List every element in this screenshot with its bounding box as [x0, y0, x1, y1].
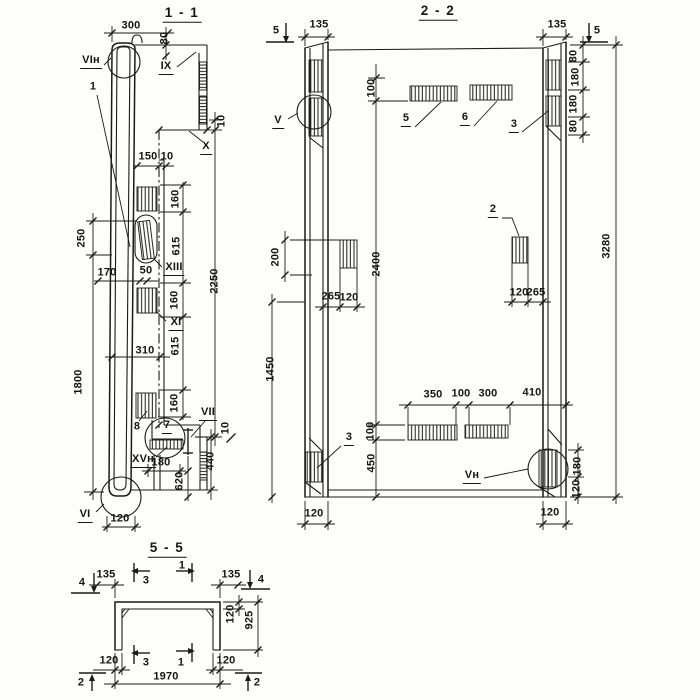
- item-3-top: 3: [509, 119, 519, 133]
- dim-250: 250: [77, 229, 88, 248]
- dim-100-top: 100: [367, 79, 378, 98]
- dim-120-under-left: 120: [305, 509, 324, 520]
- item-5: 5: [401, 113, 411, 127]
- dim-120-mid-left: 120: [340, 293, 359, 304]
- mark-x: X: [200, 141, 212, 155]
- dim-2400: 2400: [372, 251, 383, 276]
- dim-180-b: 180: [569, 95, 580, 114]
- dim-80-b: 80: [569, 120, 580, 133]
- dim-300-row: 300: [479, 389, 498, 400]
- item-1: 1: [90, 82, 96, 93]
- dim-450: 450: [367, 454, 378, 473]
- section-5-5-title: 5 - 5: [148, 541, 187, 558]
- dim-120-leg-right: 120: [217, 656, 236, 667]
- dim-1970: 1970: [153, 672, 178, 683]
- dim-350: 350: [424, 390, 443, 401]
- dim-120-leg-left: 120: [100, 656, 119, 667]
- cut-1-top: 1: [179, 561, 185, 572]
- item-6: 6: [460, 112, 470, 126]
- dim-80-a: 80: [569, 50, 580, 63]
- cut-5-right: 5: [594, 26, 600, 37]
- mark-ix: IX: [159, 61, 174, 75]
- dim-50: 50: [140, 266, 153, 277]
- dim-180-a: 180: [571, 68, 582, 87]
- mark-xiii: XIII: [163, 262, 184, 276]
- cut-2-right: 2: [254, 678, 260, 689]
- dim-120-bottom-chain: 120: [572, 480, 583, 499]
- dim-160-c: 160: [170, 394, 181, 413]
- dim-620: 620: [175, 472, 186, 491]
- dim-120-bottom: 120: [111, 514, 130, 525]
- dim-2250: 2250: [210, 268, 221, 293]
- dim-925: 925: [245, 611, 256, 630]
- item-3-bottom: 3: [344, 432, 354, 446]
- dim-80: 80: [160, 32, 171, 45]
- mark-xi: XI: [169, 317, 184, 331]
- dim-135-left: 135: [310, 20, 329, 31]
- mark-vi-n: VIн: [80, 55, 102, 69]
- dim-150: 150: [139, 152, 158, 163]
- section-2-2-title: 2 - 2: [419, 4, 458, 21]
- dim-180: 180: [152, 458, 171, 469]
- mark-v: V: [272, 115, 284, 129]
- drawing-canvas: [0, 0, 700, 700]
- dim-1800: 1800: [74, 369, 85, 394]
- dim-615-a: 615: [172, 237, 183, 256]
- dim-300: 300: [122, 21, 141, 32]
- cut-5-left: 5: [273, 26, 279, 37]
- dim-135-right: 135: [548, 20, 567, 31]
- dim-100-bottom: 100: [366, 422, 377, 441]
- dim-100-row: 100: [452, 389, 471, 400]
- cut-4-left: 4: [79, 578, 85, 589]
- item-8: 8: [134, 422, 140, 433]
- dim-200: 200: [271, 248, 282, 267]
- dim-160-a: 160: [171, 190, 182, 209]
- cut-3-top: 3: [143, 576, 149, 587]
- dim-135-right-55: 135: [222, 570, 241, 581]
- dim-120-under-right: 120: [541, 508, 560, 519]
- dim-310: 310: [136, 346, 155, 357]
- dim-615-b: 615: [171, 337, 182, 356]
- section-1-1-title: 1 - 1: [163, 6, 202, 23]
- cut-2-left: 2: [78, 678, 84, 689]
- dim-10-top: 10: [217, 115, 228, 128]
- cut-3-bottom: 3: [143, 658, 149, 669]
- mark-vii: VII: [199, 407, 217, 421]
- dim-135-left-55: 135: [97, 570, 116, 581]
- dim-10-bottom: 10: [221, 422, 232, 435]
- dim-3280: 3280: [602, 233, 613, 258]
- cut-4-right: 4: [258, 575, 264, 586]
- dim-180-bottom: 180: [573, 457, 584, 476]
- dim-1450: 1450: [266, 356, 277, 381]
- dim-160-b: 160: [170, 291, 181, 310]
- mark-v-n: Vн: [463, 470, 481, 484]
- dim-440: 440: [206, 452, 217, 471]
- dim-120-flange: 120: [226, 605, 237, 624]
- mark-vi: VI: [78, 509, 93, 523]
- item-2: 2: [488, 204, 498, 218]
- drawing-sheet: 1 - 1 300 80 1 VIн IX 10 X 150 10 160 61…: [0, 0, 700, 700]
- dim-410: 410: [523, 388, 542, 399]
- cut-1-bottom: 1: [178, 658, 184, 669]
- dim-170: 170: [98, 268, 117, 279]
- item-7: 7: [162, 420, 172, 434]
- dim-265-left: 265: [322, 292, 341, 303]
- dim-10-step: 10: [161, 152, 174, 163]
- dim-265-right: 265: [527, 288, 546, 299]
